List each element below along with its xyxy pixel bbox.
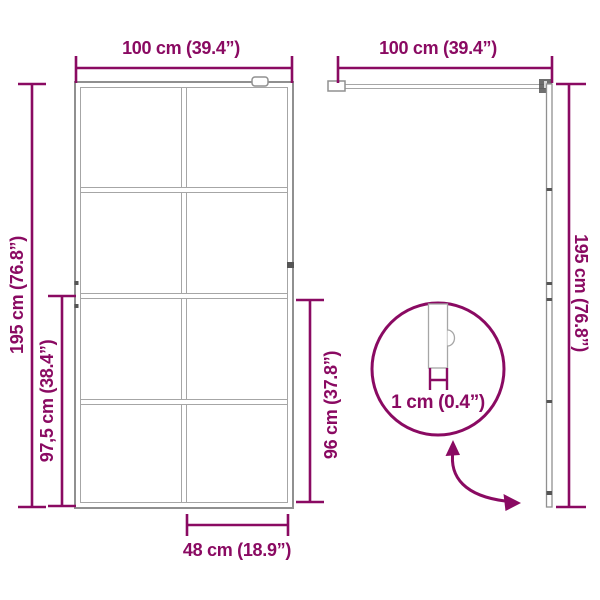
arrowhead-up <box>446 440 461 456</box>
horizontal-bar-2 <box>81 294 288 299</box>
horizontal-bar-3 <box>81 400 288 405</box>
support-arm-end-cap <box>328 81 345 91</box>
front-height-label: 195 cm (76.8”) <box>7 236 27 354</box>
wall-fitting-mark-4 <box>547 400 553 403</box>
glass-panel-edge <box>547 84 553 507</box>
left-fitting-mark-1 <box>75 281 79 285</box>
front-view: 100 cm (39.4”) 195 cm (76.8”) 97,5 cm (3… <box>7 38 341 560</box>
side-width-label: 100 cm (39.4”) <box>379 38 497 58</box>
front-glass-width-label: 48 cm (18.9”) <box>183 540 291 560</box>
product-dimension-diagram: 100 cm (39.4”) 195 cm (76.8”) 97,5 cm (3… <box>0 0 600 600</box>
right-handle-mark <box>287 262 294 268</box>
side-height-label: 195 cm (76.8”) <box>571 234 591 352</box>
glass-wall-side <box>328 79 552 507</box>
side-width-dimension: 100 cm (39.4”) <box>338 38 552 83</box>
front-glass-height-label: 96 cm (37.8”) <box>321 351 341 459</box>
thickness-detail: 1 cm (0.4”) <box>372 303 504 435</box>
wall-fitting-mark-1 <box>547 188 553 191</box>
rotation-arrow <box>446 440 522 511</box>
left-fitting-mark-2 <box>75 304 79 308</box>
side-height-dimension: 195 cm (76.8”) <box>556 84 591 507</box>
front-partial-height-label: 97,5 cm (38.4”) <box>37 339 57 462</box>
wall-fitting-mark-5 <box>547 491 553 495</box>
roller-bracket <box>252 77 268 86</box>
wall-fitting-mark-2 <box>547 282 553 285</box>
support-arm <box>345 85 547 89</box>
diagram-canvas: 100 cm (39.4”) 195 cm (76.8”) 97,5 cm (3… <box>0 0 600 600</box>
side-view: 100 cm (39.4”) 195 cm (76.8”) <box>328 38 591 507</box>
front-partial-height-dimension: 97,5 cm (38.4”) <box>37 296 76 506</box>
horizontal-bar-1 <box>81 188 288 193</box>
wall-fitting-mark-3 <box>547 298 553 301</box>
front-glass-width-dimension: 48 cm (18.9”) <box>183 514 291 560</box>
front-glass-height-dimension: 96 cm (37.8”) <box>296 300 341 502</box>
arrowhead-right <box>504 494 522 511</box>
front-width-label: 100 cm (39.4”) <box>122 38 240 58</box>
thickness-label: 1 cm (0.4”) <box>391 392 485 413</box>
glass-door-front <box>75 77 295 508</box>
